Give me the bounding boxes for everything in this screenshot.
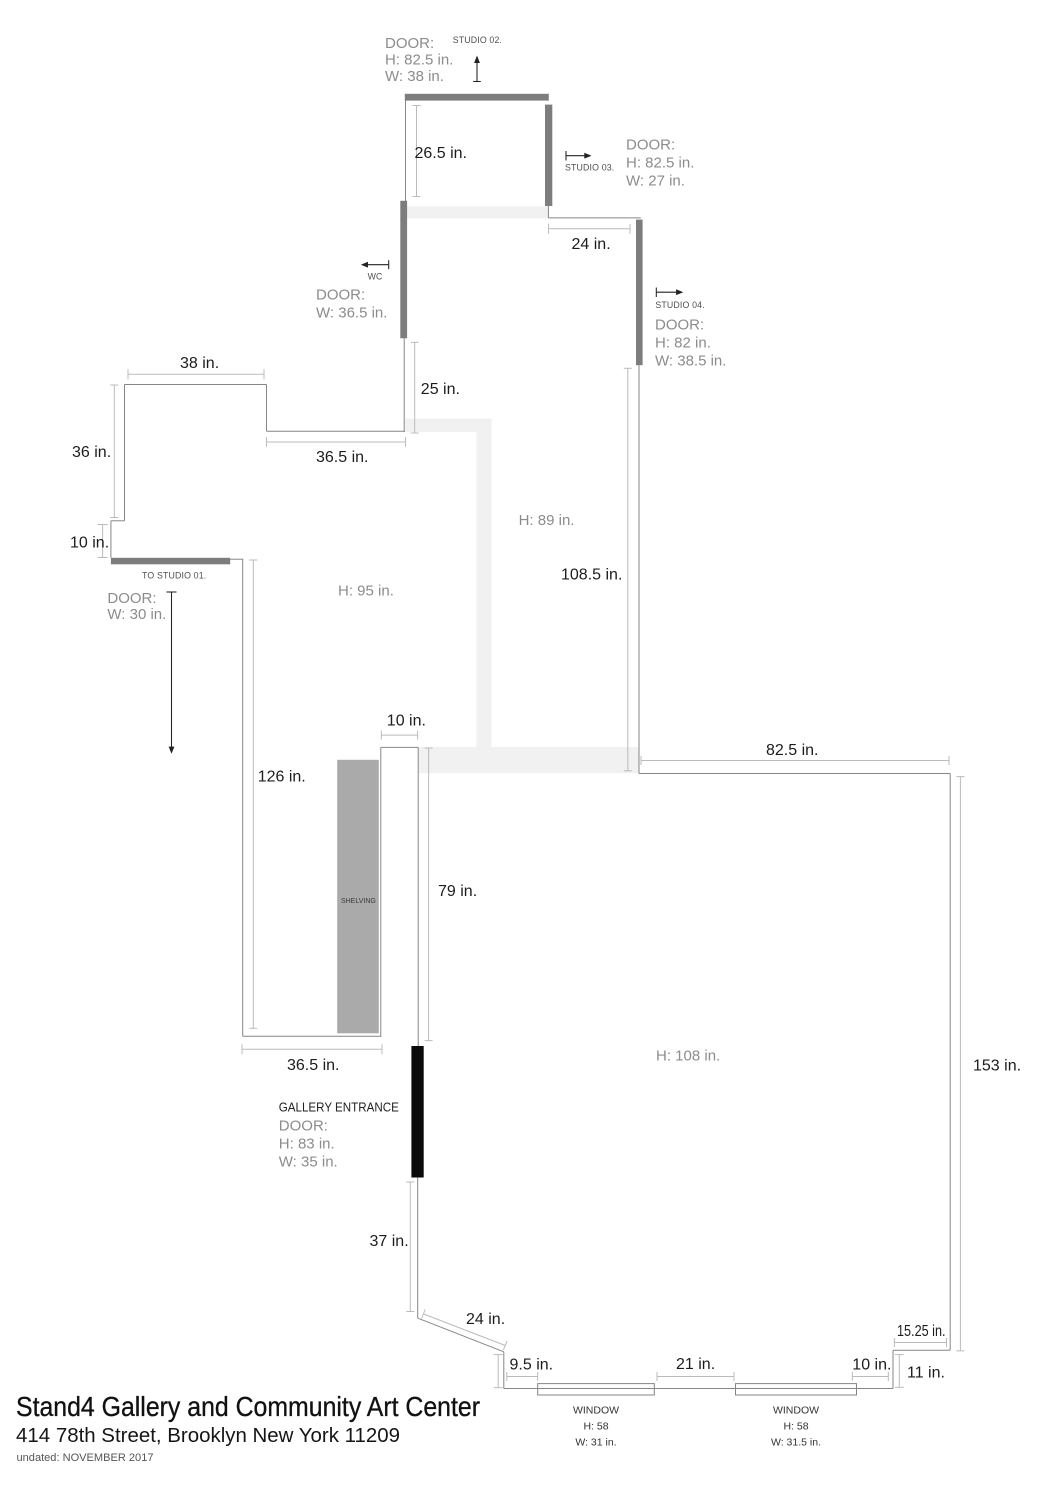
svg-text:H: 108 in.: H: 108 in. xyxy=(656,1048,720,1065)
svg-text:DOOR:: DOOR: xyxy=(279,1118,328,1135)
svg-text:undated: NOVEMBER 2017: undated: NOVEMBER 2017 xyxy=(17,1452,154,1464)
svg-text:DOOR:: DOOR: xyxy=(107,590,156,607)
svg-text:36 in.: 36 in. xyxy=(72,444,111,461)
svg-text:WINDOW: WINDOW xyxy=(773,1404,819,1416)
svg-text:H: 58: H: 58 xyxy=(783,1420,808,1432)
svg-text:W: 27 in.: W: 27 in. xyxy=(626,173,685,190)
svg-text:H: 58: H: 58 xyxy=(583,1420,608,1432)
svg-text:DOOR:: DOOR: xyxy=(316,287,365,304)
svg-text:STUDIO 03.: STUDIO 03. xyxy=(565,163,614,173)
svg-text:STUDIO 04.: STUDIO 04. xyxy=(655,300,704,310)
svg-text:37 in.: 37 in. xyxy=(370,1233,409,1250)
svg-text:36.5 in.: 36.5 in. xyxy=(287,1057,339,1074)
svg-text:W: 31 in.: W: 31 in. xyxy=(575,1436,616,1448)
svg-text:GALLERY ENTRANCE: GALLERY ENTRANCE xyxy=(279,1100,399,1115)
svg-text:15.25 in.: 15.25 in. xyxy=(897,1323,946,1340)
svg-text:DOOR:: DOOR: xyxy=(626,137,675,154)
svg-text:108.5 in.: 108.5 in. xyxy=(561,567,622,584)
svg-text:414 78th Street, Brooklyn New: 414 78th Street, Brooklyn New York 11209 xyxy=(16,1424,400,1447)
svg-text:10 in.: 10 in. xyxy=(70,535,109,552)
svg-text:W: 31.5 in.: W: 31.5 in. xyxy=(771,1436,821,1448)
svg-text:82.5 in.: 82.5 in. xyxy=(766,742,818,759)
svg-text:H: 82 in.: H: 82 in. xyxy=(655,335,711,352)
svg-text:10 in.: 10 in. xyxy=(387,712,426,729)
svg-text:SHELVING: SHELVING xyxy=(341,898,376,905)
svg-text:H: 83 in.: H: 83 in. xyxy=(279,1136,335,1153)
svg-text:24 in.: 24 in. xyxy=(466,1311,505,1328)
svg-text:H: 95 in.: H: 95 in. xyxy=(338,583,394,600)
svg-text:WINDOW: WINDOW xyxy=(573,1404,619,1416)
svg-text:26.5 in.: 26.5 in. xyxy=(415,145,467,162)
svg-text:11 in.: 11 in. xyxy=(907,1365,945,1382)
svg-text:24 in.: 24 in. xyxy=(572,236,611,253)
svg-text:WC: WC xyxy=(368,272,383,282)
svg-text:21 in.: 21 in. xyxy=(676,1356,715,1373)
svg-text:79 in.: 79 in. xyxy=(438,883,477,900)
svg-text:9.5 in.: 9.5 in. xyxy=(510,1357,554,1374)
svg-text:126 in.: 126 in. xyxy=(258,769,306,786)
svg-text:H: 82.5 in.: H: 82.5 in. xyxy=(626,155,694,172)
svg-text:W: 30 in.: W: 30 in. xyxy=(107,606,166,623)
svg-text:DOOR:: DOOR: xyxy=(385,35,434,52)
svg-text:36.5 in.: 36.5 in. xyxy=(316,449,368,466)
svg-text:38 in.: 38 in. xyxy=(180,355,219,372)
svg-text:H: 82.5 in.: H: 82.5 in. xyxy=(385,52,453,69)
svg-text:10 in.: 10 in. xyxy=(852,1357,891,1374)
svg-text:Stand4 Gallery and Community A: Stand4 Gallery and Community Art Center xyxy=(16,1391,480,1422)
svg-text:25 in.: 25 in. xyxy=(421,381,460,398)
svg-text:H: 89 in.: H: 89 in. xyxy=(519,512,575,529)
svg-text:DOOR:: DOOR: xyxy=(655,317,704,334)
svg-text:W: 38 in.: W: 38 in. xyxy=(385,68,444,85)
svg-text:W: 38.5 in.: W: 38.5 in. xyxy=(655,353,726,370)
svg-text:W: 36.5 in.: W: 36.5 in. xyxy=(316,305,387,322)
svg-text:TO STUDIO 01.: TO STUDIO 01. xyxy=(142,571,206,581)
svg-text:153 in.: 153 in. xyxy=(973,1058,1021,1075)
svg-text:W: 35 in.: W: 35 in. xyxy=(279,1154,338,1171)
svg-text:STUDIO 02.: STUDIO 02. xyxy=(453,35,502,45)
